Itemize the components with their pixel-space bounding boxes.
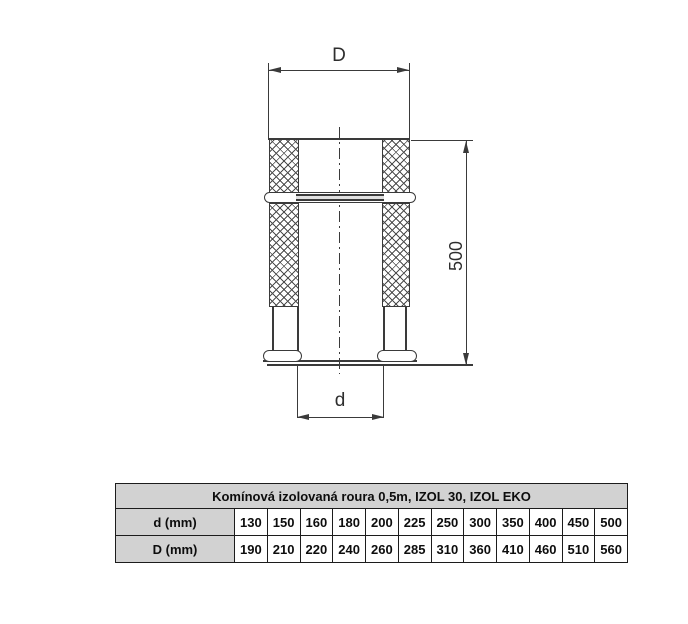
size-value-cell: 410 xyxy=(497,536,530,563)
insulation-hatch-main-right xyxy=(382,203,410,307)
arrowhead-left-icon xyxy=(269,67,281,73)
size-value-cell: 220 xyxy=(300,536,333,563)
size-value-cell: 460 xyxy=(529,536,562,563)
catalog-page: D d xyxy=(0,0,688,624)
insulation-hatch-upper-left xyxy=(269,139,299,194)
extension-line-right xyxy=(409,63,410,140)
size-value-cell: 350 xyxy=(497,509,530,536)
size-value-cell: 240 xyxy=(333,536,366,563)
table-title: Komínová izolovaná roura 0,5m, IZOL 30, … xyxy=(116,484,628,509)
inner-pipe-joint-line xyxy=(296,194,384,201)
pipe-bead-left xyxy=(263,350,302,362)
size-value-cell: 180 xyxy=(333,509,366,536)
arrowhead-right-icon xyxy=(372,414,384,420)
size-value-cell: 210 xyxy=(267,536,300,563)
arrowhead-down-icon xyxy=(463,353,469,365)
arrowhead-left-icon xyxy=(297,414,309,420)
size-value-cell: 225 xyxy=(398,509,431,536)
size-value-cell: 360 xyxy=(464,536,497,563)
dimension-label-inner-diameter: d xyxy=(318,390,362,412)
extension-line-inner-left xyxy=(297,366,298,418)
pipe-bead-right xyxy=(377,350,417,362)
dimension-line-inner-diameter xyxy=(297,417,384,418)
table-row-outer-diameter: D (mm) 190 210 220 240 260 285 310 360 4… xyxy=(116,536,628,563)
size-value-cell: 250 xyxy=(431,509,464,536)
extension-line-inner-right xyxy=(383,366,384,418)
size-value-cell: 160 xyxy=(300,509,333,536)
outer-shell-wall-right xyxy=(405,307,407,351)
size-value-cell: 560 xyxy=(595,536,628,563)
dimension-line-outer-diameter xyxy=(269,70,410,71)
size-value-cell: 510 xyxy=(562,536,595,563)
pipe-size-table: Komínová izolovaná roura 0,5m, IZOL 30, … xyxy=(115,483,628,563)
row-label-outer-diameter: D (mm) xyxy=(116,536,235,563)
size-value-cell: 300 xyxy=(464,509,497,536)
table-row-inner-diameter: d (mm) 130 150 160 180 200 225 250 300 3… xyxy=(116,509,628,536)
size-value-cell: 400 xyxy=(529,509,562,536)
row-label-inner-diameter: d (mm) xyxy=(116,509,235,536)
size-value-cell: 500 xyxy=(595,509,628,536)
arrowhead-right-icon xyxy=(397,67,409,73)
dimension-label-outer-diameter: D xyxy=(317,45,361,67)
insulation-hatch-upper-right xyxy=(382,139,410,194)
dimension-line-length xyxy=(466,141,467,365)
size-value-cell: 285 xyxy=(398,536,431,563)
size-value-cell: 310 xyxy=(431,536,464,563)
size-value-cell: 260 xyxy=(366,536,399,563)
size-value-cell: 450 xyxy=(562,509,595,536)
insulation-hatch-main-left xyxy=(269,203,299,307)
extension-line-left xyxy=(268,63,269,140)
size-value-cell: 130 xyxy=(235,509,268,536)
size-value-cell: 150 xyxy=(267,509,300,536)
table-title-row: Komínová izolovaná roura 0,5m, IZOL 30, … xyxy=(116,484,628,509)
dimension-label-length: 500 xyxy=(445,226,463,286)
size-value-cell: 190 xyxy=(235,536,268,563)
outer-shell-wall-left xyxy=(272,307,274,351)
size-value-cell: 200 xyxy=(366,509,399,536)
center-axis-line xyxy=(339,127,340,374)
arrowhead-up-icon xyxy=(463,141,469,153)
